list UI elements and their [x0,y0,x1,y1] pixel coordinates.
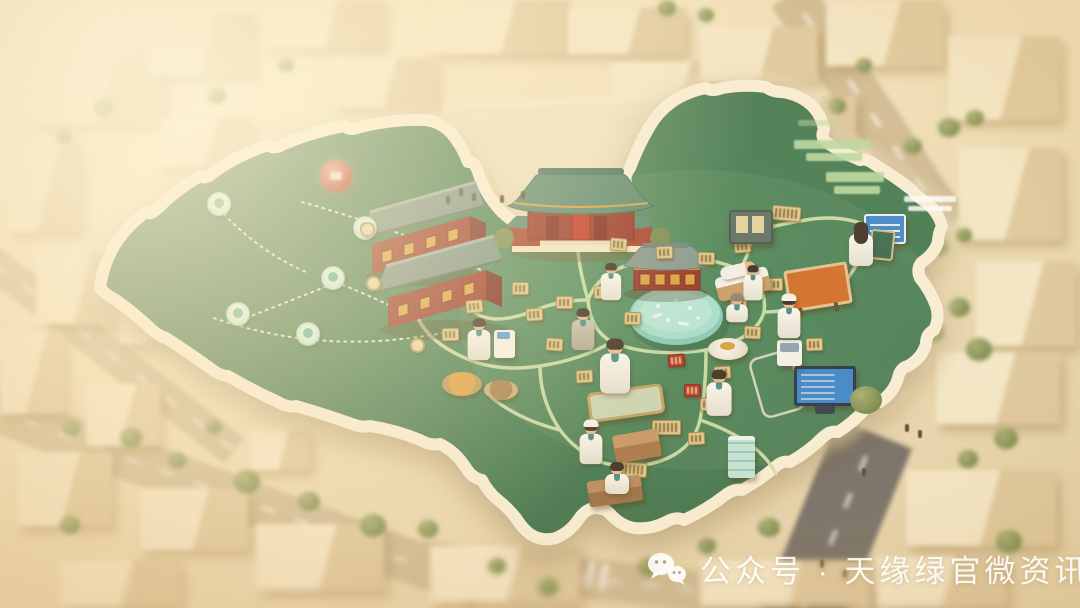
researcher-figure [848,222,874,268]
poster [752,216,764,233]
red-emblem-badge [320,160,352,192]
wayfinding-sign [526,307,544,321]
wayfinding-sign [442,328,459,341]
medical-machine [777,340,802,366]
marker-core [214,198,224,208]
distant-person [905,424,909,432]
distant-person [918,430,922,438]
red-tag-sign [667,353,685,367]
marker-core [303,328,313,338]
illustration-canvas: 公众号 · 天缘绿官微资讯 [0,0,1080,608]
teal-location-marker [321,266,345,292]
wayfinding-sign [576,370,594,384]
elder-figure [725,293,748,324]
map-bush [850,386,882,414]
reception-terminal [494,330,515,358]
teal-location-marker [207,192,231,218]
watermark-text: 公众号 · 天缘绿官微资讯 [700,546,1080,591]
herb-basket [484,380,518,400]
distant-person [500,195,504,203]
pharmacy-desk [612,428,662,464]
distant-person [446,196,450,204]
map-items [0,0,1080,608]
wayfinding-sign [656,246,673,260]
poster [736,216,748,233]
doctor-figure [705,370,732,418]
seated-patient-figure [604,462,630,496]
path-node [360,222,375,237]
bulletin-board [729,210,773,244]
wayfinding-sign [512,282,529,295]
marker-core [328,272,338,282]
wayfinding-sign [688,432,706,446]
screen-content [797,369,853,403]
chief-doctor-figure [599,339,632,397]
distant-person [459,188,463,196]
wayfinding-sign [744,326,762,340]
wayfinding-sign [624,312,641,326]
nurse-figure [777,296,802,340]
path-node [410,338,425,353]
watermark: 公众号 · 天缘绿官微资讯 [646,546,1080,591]
display-screen [794,366,856,406]
doctor-figure [600,263,622,302]
wayfinding-sign [465,299,483,313]
wayfinding-sign [698,252,715,266]
wayfinding-sign [556,296,573,309]
teal-location-marker [226,302,250,328]
distant-person [521,191,525,199]
wayfinding-sign [806,338,823,352]
distant-person [472,193,476,201]
wechat-icon [646,551,688,587]
herb-table [708,338,748,360]
wayfinding-sign [609,237,627,251]
pharmacist-figure [579,422,604,466]
doctor-figure [467,318,492,362]
marker-core [233,308,243,318]
wayfinding-sign [546,337,564,351]
herb-basket [442,372,482,396]
patient-figure [571,308,596,352]
teal-location-marker [296,322,320,348]
distant-person [862,468,866,476]
wayfinding-sign [771,205,801,222]
medicine-cabinet [728,436,755,478]
path-node [366,276,381,291]
red-tag-sign [684,384,701,397]
